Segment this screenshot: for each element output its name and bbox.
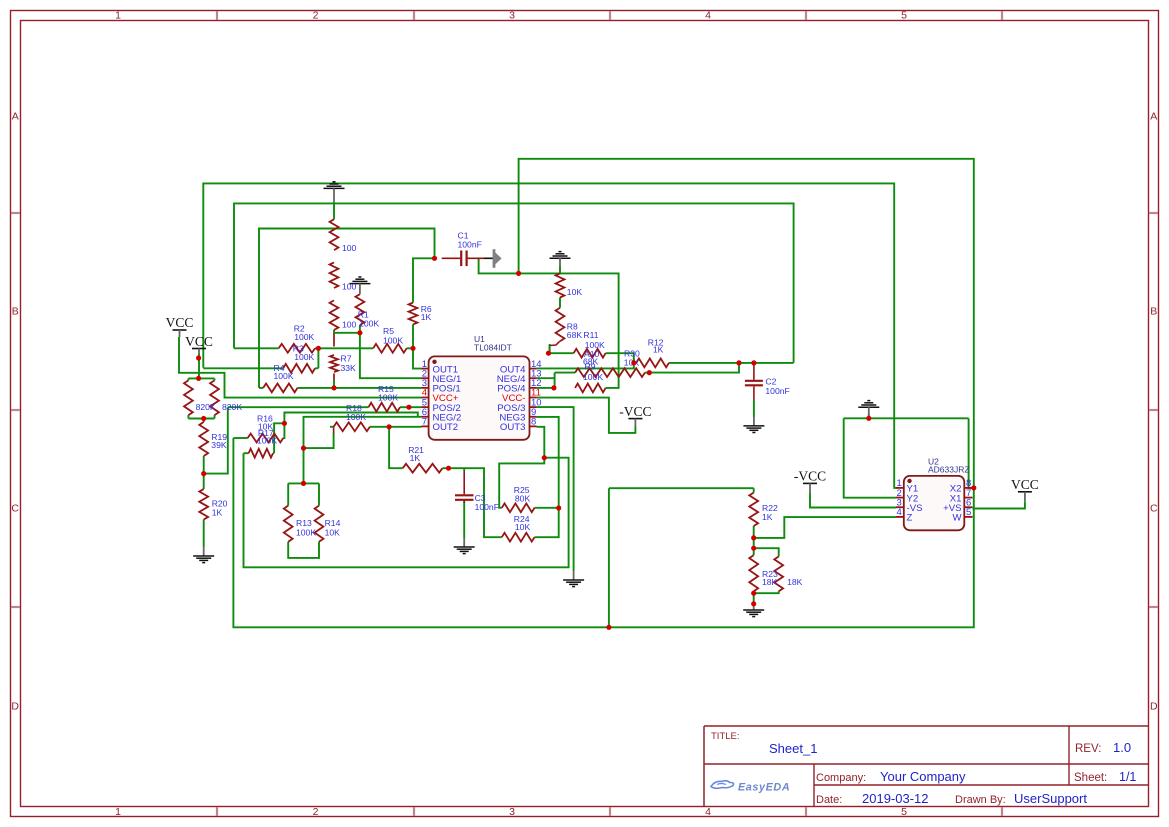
svg-text:B: B xyxy=(1150,306,1157,318)
svg-text:18K: 18K xyxy=(762,577,778,587)
svg-text:820K: 820K xyxy=(222,402,242,412)
svg-text:100K: 100K xyxy=(294,352,314,362)
svg-text:TITLE:: TITLE: xyxy=(711,731,740,742)
svg-text:18K: 18K xyxy=(787,577,803,587)
svg-text:1: 1 xyxy=(115,806,121,818)
svg-text:3: 3 xyxy=(509,9,515,21)
svg-text:Your Company: Your Company xyxy=(880,769,966,784)
svg-text:C2: C2 xyxy=(765,377,776,387)
svg-text:C: C xyxy=(1150,503,1158,515)
svg-text:Drawn By:: Drawn By: xyxy=(955,794,1006,806)
svg-text:TL084IDT: TL084IDT xyxy=(474,342,512,352)
svg-text:80K: 80K xyxy=(515,494,531,504)
svg-text:1K: 1K xyxy=(410,453,421,463)
svg-text:REV:: REV: xyxy=(1075,743,1101,755)
svg-text:5: 5 xyxy=(901,806,907,818)
svg-text:1/1: 1/1 xyxy=(1119,770,1136,784)
svg-text:OUT3: OUT3 xyxy=(500,422,526,433)
svg-text:D: D xyxy=(11,701,19,713)
svg-text:2: 2 xyxy=(313,9,319,21)
svg-text:Sheet_1: Sheet_1 xyxy=(769,741,817,756)
svg-text:100: 100 xyxy=(342,282,357,292)
svg-text:3: 3 xyxy=(509,806,515,818)
svg-text:R11: R11 xyxy=(583,330,598,340)
svg-text:VCC: VCC xyxy=(166,315,194,330)
svg-text:VCC: VCC xyxy=(1011,477,1039,492)
svg-text:1K: 1K xyxy=(762,512,773,522)
svg-text:1K: 1K xyxy=(421,312,432,322)
svg-text:1: 1 xyxy=(115,9,121,21)
svg-text:R9: R9 xyxy=(585,362,596,372)
svg-text:AD633JRZ: AD633JRZ xyxy=(928,465,970,475)
svg-text:100K: 100K xyxy=(383,336,403,346)
svg-text:100nF: 100nF xyxy=(475,502,499,512)
svg-text:C: C xyxy=(11,503,19,515)
svg-text:1.0: 1.0 xyxy=(1113,740,1131,755)
svg-text:10K: 10K xyxy=(325,527,341,537)
svg-text:B: B xyxy=(12,306,19,318)
svg-text:Company:: Company: xyxy=(816,772,866,784)
svg-text:Z: Z xyxy=(907,513,913,524)
svg-text:4: 4 xyxy=(705,806,711,818)
svg-text:68K: 68K xyxy=(567,330,583,340)
svg-text:UserSupport: UserSupport xyxy=(1014,791,1087,806)
svg-text:100: 100 xyxy=(342,243,357,253)
svg-text:100K: 100K xyxy=(583,372,603,382)
svg-text:5: 5 xyxy=(966,507,971,518)
svg-text:Sheet:: Sheet: xyxy=(1074,772,1107,784)
svg-text:10K: 10K xyxy=(515,522,531,532)
svg-text:1K: 1K xyxy=(212,508,223,518)
svg-text:100: 100 xyxy=(342,320,357,330)
svg-text:-VCC: -VCC xyxy=(619,404,651,419)
svg-text:100K: 100K xyxy=(257,436,277,446)
svg-text:100K: 100K xyxy=(274,371,294,381)
svg-text:W: W xyxy=(952,513,962,524)
svg-text:7: 7 xyxy=(422,417,427,428)
svg-text:100K: 100K xyxy=(294,332,314,342)
svg-text:8: 8 xyxy=(531,417,536,428)
svg-text:2019-03-12: 2019-03-12 xyxy=(862,791,929,806)
svg-text:1K: 1K xyxy=(653,344,664,354)
svg-text:100K: 100K xyxy=(296,527,316,537)
svg-text:A: A xyxy=(1150,111,1157,123)
svg-text:5: 5 xyxy=(901,9,907,21)
svg-text:100K: 100K xyxy=(346,412,366,422)
svg-text:820K: 820K xyxy=(196,402,216,412)
svg-text:4: 4 xyxy=(705,9,711,21)
svg-text:33K: 33K xyxy=(341,363,357,373)
svg-text:10K: 10K xyxy=(567,287,583,297)
svg-text:2: 2 xyxy=(313,806,319,818)
svg-text:EasyEDA: EasyEDA xyxy=(738,782,790,794)
svg-text:39K: 39K xyxy=(211,440,227,450)
svg-text:VCC: VCC xyxy=(185,334,213,349)
svg-text:R7: R7 xyxy=(341,354,352,364)
svg-text:-VCC: -VCC xyxy=(794,469,826,484)
svg-text:Date:: Date: xyxy=(816,794,842,806)
svg-text:100nF: 100nF xyxy=(458,240,482,250)
svg-text:R5: R5 xyxy=(383,326,394,336)
svg-text:100K: 100K xyxy=(378,393,398,403)
svg-text:OUT2: OUT2 xyxy=(433,422,459,433)
svg-text:4: 4 xyxy=(897,507,902,518)
svg-text:A: A xyxy=(12,111,19,123)
svg-text:100nF: 100nF xyxy=(765,386,789,396)
svg-text:D: D xyxy=(1150,701,1158,713)
svg-text:100K: 100K xyxy=(359,319,379,329)
